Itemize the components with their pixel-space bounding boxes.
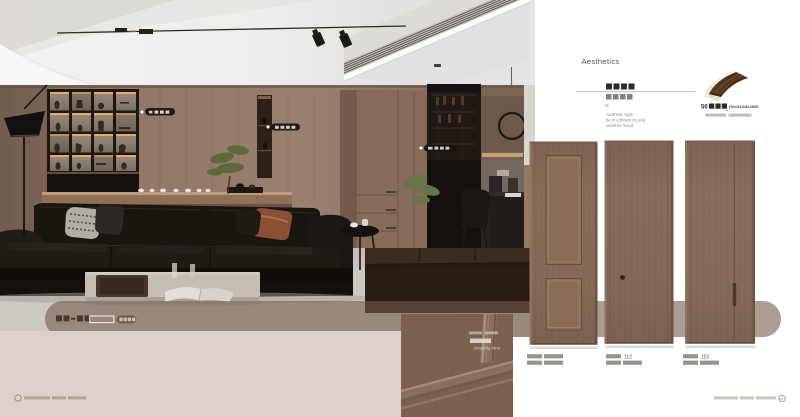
svg-text:(54x54)18x2800: (54x54)18x2800 xyxy=(729,104,759,109)
svg-text:be in a brown try and: be in a brown try and xyxy=(606,118,646,123)
svg-text:115: 115 xyxy=(701,355,709,361)
svg-text:112: 112 xyxy=(624,355,632,361)
svg-text:50: 50 xyxy=(701,105,708,111)
svg-text:Aesthetic style: Aesthetic style xyxy=(606,112,634,117)
svg-text:Aesthetics: Aesthetics xyxy=(582,57,620,66)
svg-text:<: < xyxy=(605,103,609,110)
svg-text:Amazing time: Amazing time xyxy=(472,346,501,351)
svg-text:05: 05 xyxy=(780,397,784,401)
svg-text:carefree mood: carefree mood xyxy=(606,123,634,128)
